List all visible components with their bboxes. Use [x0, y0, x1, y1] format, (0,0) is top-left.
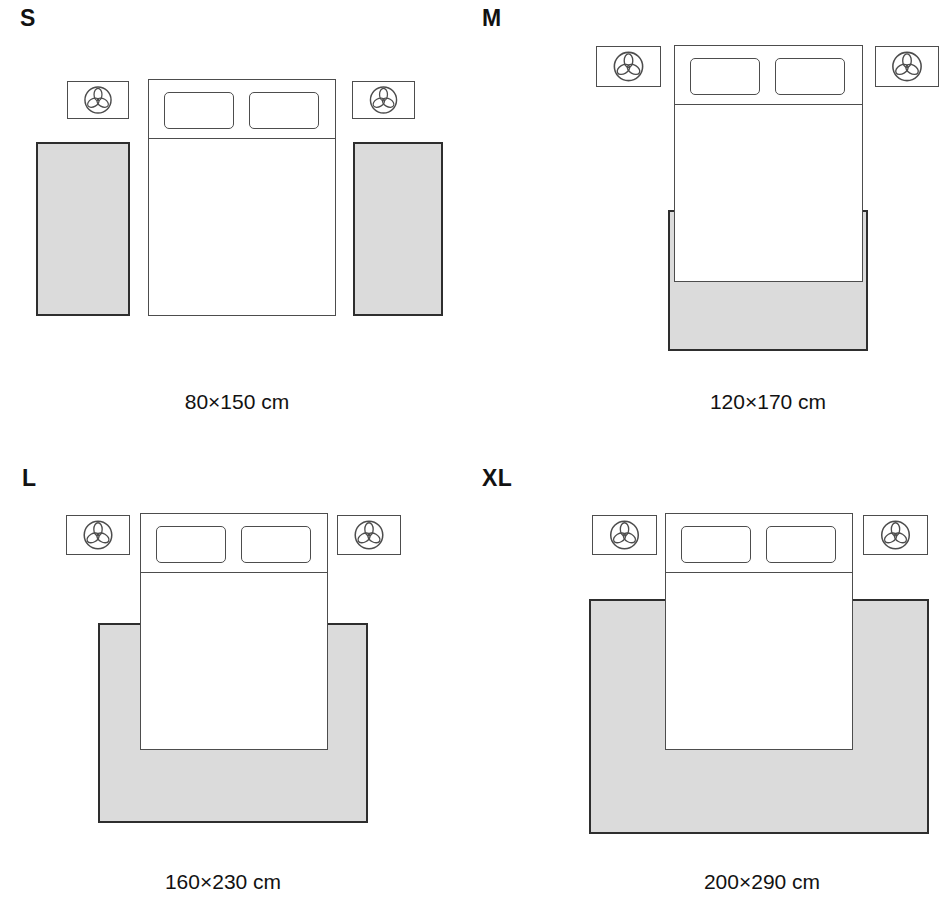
size-caption: 120×170 cm	[648, 389, 888, 414]
bed	[140, 513, 328, 750]
size-caption: 200×290 cm	[642, 869, 882, 894]
size-panel-s: S 80×150 cm	[0, 0, 475, 450]
size-label: S	[20, 6, 36, 31]
plant-icon	[67, 516, 129, 554]
pillow-left	[681, 526, 751, 563]
plant-icon	[68, 82, 128, 118]
bed-headboard	[141, 514, 327, 573]
nightstand-right	[352, 81, 415, 119]
rug-right	[353, 142, 443, 316]
nightstand-left	[596, 46, 661, 87]
nightstand-left	[67, 81, 129, 119]
plant-icon	[338, 516, 400, 554]
pillow-left	[164, 92, 234, 129]
size-label: L	[22, 466, 37, 491]
size-panel-m: M 120×170 cm	[475, 0, 950, 450]
bed	[674, 45, 863, 282]
pillow-right	[249, 92, 319, 129]
size-caption: 80×150 cm	[117, 389, 357, 414]
rug-size-guide: S 80×150 cm	[0, 0, 950, 900]
bed-headboard	[675, 46, 862, 105]
pillow-right	[241, 526, 311, 563]
bed-headboard	[149, 80, 335, 139]
plant-icon	[876, 47, 938, 86]
plant-icon	[593, 516, 656, 554]
nightstand-right	[337, 515, 401, 555]
rug-left	[36, 142, 130, 316]
bed-headboard	[666, 514, 852, 573]
nightstand-left	[592, 515, 657, 555]
nightstand-left	[66, 515, 130, 555]
size-label: M	[482, 6, 502, 31]
pillow-right	[775, 58, 845, 95]
pillow-left	[690, 58, 760, 95]
bed	[665, 513, 853, 750]
nightstand-right	[875, 46, 939, 87]
size-panel-l: L 160×230 cm	[0, 450, 475, 900]
plant-icon	[597, 47, 660, 86]
pillow-right	[766, 526, 836, 563]
size-panel-xl: XL 200×290 cm	[475, 450, 950, 900]
size-label: XL	[482, 466, 512, 491]
plant-icon	[864, 516, 927, 554]
pillow-left	[156, 526, 226, 563]
bed	[148, 79, 336, 316]
size-caption: 160×230 cm	[103, 869, 343, 894]
nightstand-right	[863, 515, 928, 555]
plant-icon	[353, 82, 414, 118]
